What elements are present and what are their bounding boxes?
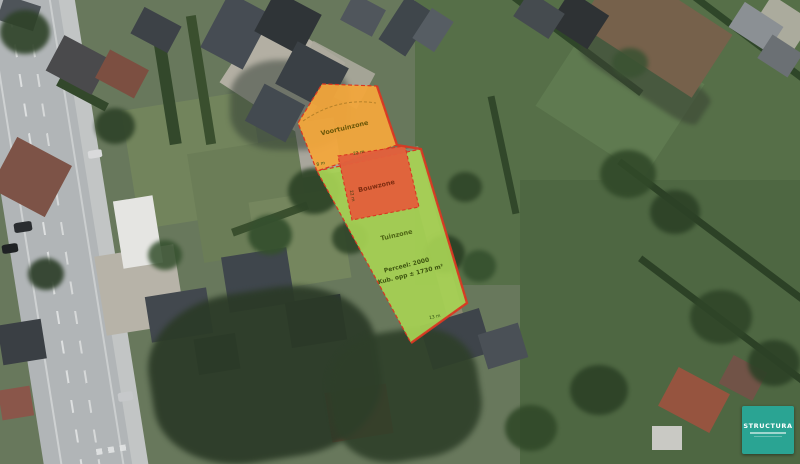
structura-logo-rule (750, 432, 786, 434)
parcel-plan-overlay: Voortuinzone Bouwzone Tuinzone Perceel: … (0, 0, 800, 464)
structura-logo: STRUCTURA (742, 406, 794, 454)
structura-logo-text: STRUCTURA (743, 423, 792, 430)
satellite-map: Voortuinzone Bouwzone Tuinzone Perceel: … (0, 0, 800, 464)
structura-logo-rule2 (754, 436, 782, 437)
